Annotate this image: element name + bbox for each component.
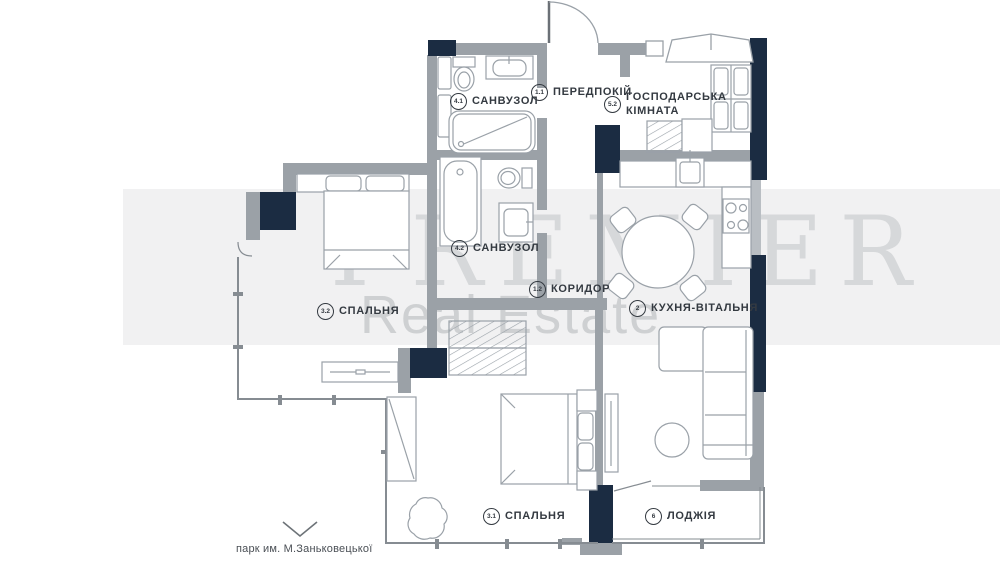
wardrobe-icon	[387, 397, 416, 481]
room-name: САНВУЗОЛ	[472, 95, 538, 109]
park-direction-label: парк им. М.Заньковецької	[236, 543, 373, 555]
room-number: 4.1	[450, 93, 467, 110]
room-number: 1.1	[531, 84, 548, 101]
closet-hangers-icon	[449, 321, 526, 375]
shower-icon	[449, 111, 535, 153]
room-number: 5.2	[604, 96, 621, 113]
room-name: ГОСПОДАРСЬКА КІМНАТА	[626, 91, 727, 119]
sink-icon	[499, 203, 533, 242]
room-name: САНВУЗОЛ	[473, 242, 539, 256]
stove-icon	[723, 199, 749, 233]
sink-icon	[486, 56, 533, 79]
cabinet-icon	[438, 57, 451, 89]
bathtub-icon	[440, 157, 481, 246]
room-label-utility: 5.2 ГОСПОДАРСЬКА КІМНАТА	[604, 91, 727, 119]
entry-closet-icon	[646, 34, 753, 62]
room-number: 1.2	[529, 281, 546, 298]
room-label-bathroom-2: 4.2 САНВУЗОЛ	[451, 240, 539, 257]
living-fixtures	[605, 327, 753, 472]
entry-door	[549, 1, 598, 43]
room-label-bedroom-2: 3.2 СПАЛЬНЯ	[317, 303, 399, 320]
kitchen-fixtures	[606, 150, 751, 303]
cabinet-icon	[682, 119, 712, 152]
toilet-icon	[453, 57, 475, 91]
room-label-loggia: 6 ЛОДЖІЯ	[645, 508, 716, 525]
room-number: 2	[629, 300, 646, 317]
coffee-table-icon	[655, 423, 689, 457]
room-label-kitchen-living: 2 КУХНЯ-ВІТАЛЬНЯ	[629, 300, 758, 317]
room-label-bedroom-1: 3.1 СПАЛЬНЯ	[483, 508, 565, 525]
bed-icon	[297, 174, 409, 269]
room-number: 3.2	[317, 303, 334, 320]
room-number: 4.2	[451, 240, 468, 257]
dining-table-icon	[606, 202, 710, 302]
room-number: 6	[645, 508, 662, 525]
room-name: КОРИДОР	[551, 283, 610, 297]
toilet-icon	[498, 168, 532, 188]
room-name: ЛОДЖІЯ	[667, 510, 716, 524]
room-label-corridor: 1.2 КОРИДОР	[529, 281, 610, 298]
chevron-down-icon	[281, 520, 319, 538]
room-number: 3.1	[483, 508, 500, 525]
floorplan-svg	[0, 0, 1000, 563]
room-name: СПАЛЬНЯ	[505, 510, 565, 524]
room-name: КУХНЯ-ВІТАЛЬНЯ	[651, 302, 758, 316]
bathroom2-fixtures	[440, 157, 533, 246]
tv-console-icon	[322, 362, 398, 382]
plant-icon	[408, 498, 447, 540]
room-label-bathroom-1: 4.1 САНВУЗОЛ	[450, 93, 538, 110]
room-name: СПАЛЬНЯ	[339, 305, 399, 319]
bedroom2-fixtures	[297, 174, 409, 382]
drying-rack-icon	[647, 121, 682, 152]
bed-icon	[501, 390, 597, 490]
tv-console-icon	[605, 394, 618, 472]
floorplan-page: PREMIER Real Estate	[0, 0, 1000, 563]
